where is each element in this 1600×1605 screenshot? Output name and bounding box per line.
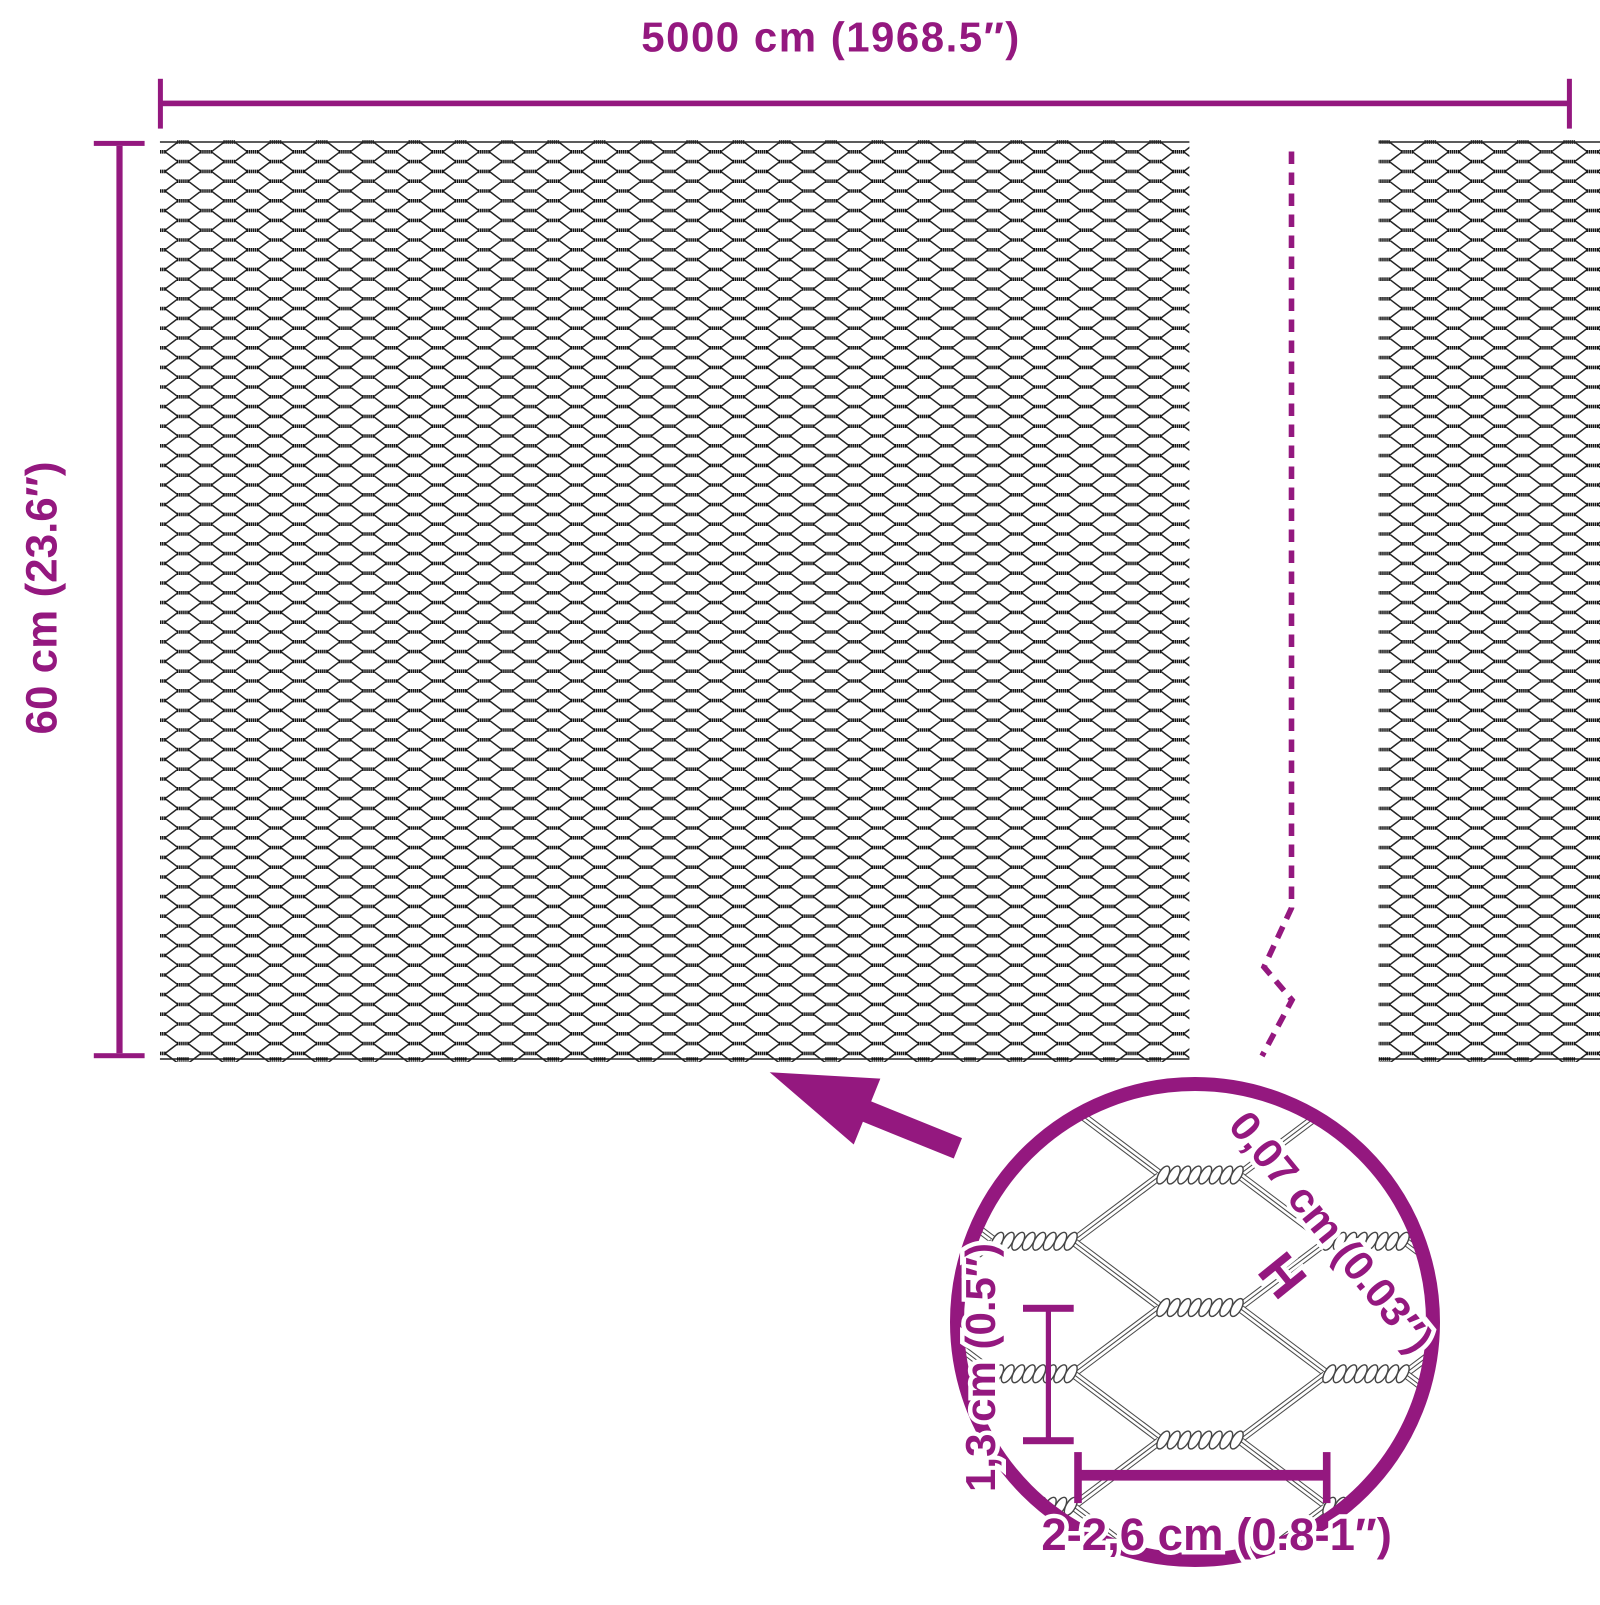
svg-text:2-2,6 cm (0.8-1″): 2-2,6 cm (0.8-1″)	[1041, 1509, 1392, 1560]
svg-text:1,3 cm (0.5″): 1,3 cm (0.5″)	[957, 1243, 1004, 1492]
svg-text:60 cm (23.6″): 60 cm (23.6″)	[18, 461, 67, 734]
svg-text:5000 cm (1968.5″): 5000 cm (1968.5″)	[641, 14, 1021, 61]
